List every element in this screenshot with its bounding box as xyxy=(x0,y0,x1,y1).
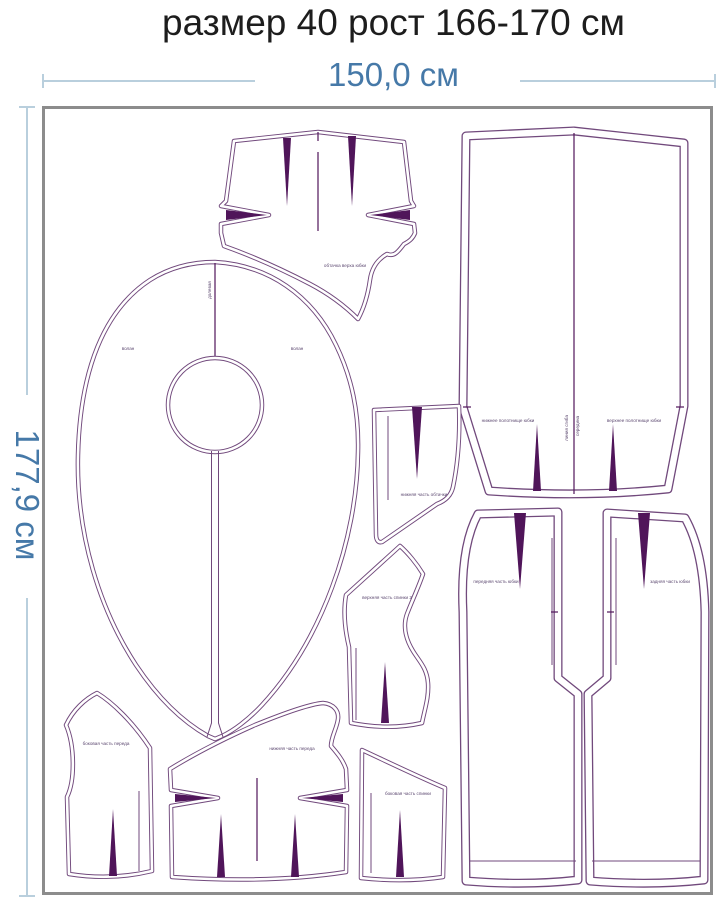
piece-label: нижняя часть обтачки xyxy=(401,492,448,497)
piece-label: боковая часть переда xyxy=(83,741,130,746)
piece-label: нижнее полотнище юбки xyxy=(482,418,535,423)
cutting-line xyxy=(78,262,358,739)
pattern-drawing: волан волан долевая обтачка верха юбки xyxy=(0,0,727,908)
pattern-piece-wedge: нижняя часть обтачки xyxy=(374,406,459,542)
piece-label: нижняя часть переда xyxy=(269,746,315,751)
piece-label: боковая часть спинки xyxy=(385,791,431,796)
piece-label: задняя часть юбки xyxy=(650,579,690,584)
pattern-piece-flounce: волан волан долевая xyxy=(78,262,358,739)
pattern-piece-back-upper: верхняя часть спинки 2 xyxy=(345,546,429,727)
fold-line-label: линия сгиба xyxy=(564,415,569,441)
grainline-label: долевая xyxy=(207,281,212,299)
pattern-piece-side-back: боковая часть спинки xyxy=(361,750,445,880)
piece-label: волан xyxy=(122,346,135,351)
piece-label: волан xyxy=(291,346,304,351)
pattern-piece-fold-panel: нижнее полотнище юбки верхнее полотнище … xyxy=(463,131,684,494)
piece-label: обтачка верха юбки xyxy=(324,263,367,268)
piece-label: верхнее полотнище юбки xyxy=(607,418,662,423)
piece-label: верхняя часть спинки 2 xyxy=(362,595,412,600)
piece-label: передняя часть юбки xyxy=(473,579,519,584)
pattern-sheet: размер 40 рост 166-170 см 150,0 см 177,9… xyxy=(0,0,727,908)
pattern-piece-skirt-back: задняя часть юбки xyxy=(588,513,705,883)
pattern-piece-front-side: боковая часть переда xyxy=(66,693,152,877)
fold-line-label: середина xyxy=(575,415,580,436)
pattern-piece-skirt-front: передняя часть юбки xyxy=(463,512,578,883)
